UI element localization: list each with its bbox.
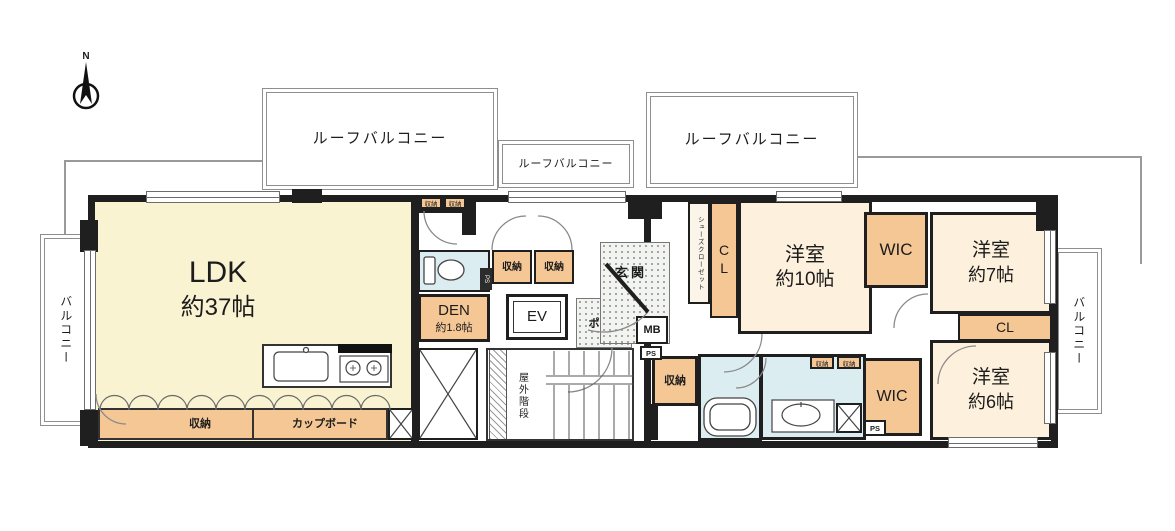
window bbox=[146, 191, 280, 203]
bedroom7-name: 洋室 bbox=[972, 239, 1010, 264]
window bbox=[1044, 230, 1056, 304]
hall-storage-label: 収納 bbox=[664, 374, 686, 388]
stairs-hatch bbox=[489, 350, 507, 439]
wall-segment bbox=[80, 410, 98, 446]
ps-entrance-label: PS bbox=[646, 349, 656, 358]
ps-wash: PS bbox=[864, 420, 886, 436]
outdoor-stairs-label: 屋外階段 bbox=[510, 354, 534, 438]
window bbox=[508, 191, 626, 203]
wall-segment bbox=[292, 189, 322, 203]
window bbox=[84, 250, 96, 410]
parapet-line bbox=[64, 160, 264, 162]
top-storage-b: 収納 bbox=[444, 197, 466, 209]
roof-balcony-left-label: ルーフバルコニー bbox=[313, 129, 448, 149]
ldk-name: LDK bbox=[189, 253, 247, 292]
corridor-storage-a: 収納 bbox=[492, 250, 532, 284]
floor-plan: N ルーフバルコニー ルーフバルコニー ルーフバルコニー バルコニー バルコニー… bbox=[0, 0, 1175, 531]
outdoor-stairs bbox=[486, 348, 634, 441]
roof-balcony-left: ルーフバルコニー bbox=[262, 88, 498, 190]
room-ldk: LDK 約37帖 bbox=[128, 248, 308, 328]
stove-hood bbox=[338, 344, 392, 353]
ps-entrance: PS bbox=[640, 346, 662, 360]
wic-bedroom10: WIC bbox=[864, 212, 928, 288]
elevator-label: EV bbox=[527, 307, 547, 327]
ps-wash-label: PS bbox=[870, 424, 880, 433]
roof-balcony-center: ルーフバルコニー bbox=[498, 140, 634, 188]
ldk-storage-strip: 収納 カップボード bbox=[98, 408, 388, 440]
room-bedroom6: 洋室 約6帖 bbox=[930, 340, 1052, 440]
balcony-right-label: バルコニー bbox=[1070, 296, 1086, 366]
ps-toilet: PS bbox=[480, 268, 492, 290]
corridor-storage-b: 収納 bbox=[534, 250, 574, 284]
wash-storage-b-label: 収納 bbox=[843, 358, 856, 368]
shaft-box bbox=[388, 408, 414, 440]
room-den: DEN 約1.8帖 bbox=[418, 294, 490, 342]
balcony-right: バルコニー bbox=[1054, 248, 1102, 414]
compass-icon bbox=[64, 60, 108, 118]
parapet-line bbox=[1140, 156, 1142, 264]
entrance-label: 玄関 bbox=[615, 265, 647, 282]
corridor-storage-b-label: 収納 bbox=[544, 261, 564, 274]
wic-bedroom10-label: WIC bbox=[879, 239, 912, 261]
bedroom7-size: 約7帖 bbox=[968, 264, 1014, 287]
shoes-closet: シューズクローゼット bbox=[688, 202, 710, 304]
corridor-storage-a-label: 収納 bbox=[502, 261, 522, 274]
parapet-line bbox=[856, 156, 1142, 158]
shaft-box-wash bbox=[836, 403, 862, 433]
closet-bedroom10: CL bbox=[710, 202, 738, 318]
top-storage-a-label: 収納 bbox=[425, 198, 438, 208]
ldk-size: 約37帖 bbox=[181, 292, 256, 323]
bedroom6-size: 約6帖 bbox=[968, 391, 1014, 414]
compass: N bbox=[64, 50, 108, 120]
window bbox=[1044, 352, 1056, 424]
balcony-left: バルコニー bbox=[40, 234, 90, 426]
wall-segment bbox=[628, 195, 662, 219]
window bbox=[948, 437, 1038, 448]
wall-segment bbox=[646, 404, 658, 440]
roof-balcony-right: ルーフバルコニー bbox=[646, 92, 858, 188]
meter-box-label: MB bbox=[643, 324, 660, 336]
shaft-box-large bbox=[418, 348, 478, 440]
wic-bedroom6-label: WIC bbox=[876, 387, 907, 408]
cupboard-label: カップボード bbox=[260, 417, 390, 431]
roof-balcony-right-label: ルーフバルコニー bbox=[685, 130, 820, 150]
top-storage-b-label: 収納 bbox=[449, 198, 462, 208]
bedroom10-name: 洋室 bbox=[785, 242, 825, 268]
ps-toilet-label: PS bbox=[483, 275, 489, 283]
closet-bedroom6: CL bbox=[958, 314, 1052, 341]
closet-bedroom6-label: CL bbox=[996, 318, 1014, 336]
den-name: DEN bbox=[438, 301, 470, 321]
top-storage-a: 収納 bbox=[420, 197, 442, 209]
ldk-storage-label: 収納 bbox=[140, 417, 260, 431]
room-bedroom7: 洋室 約7帖 bbox=[930, 212, 1052, 314]
wash-storage-b: 収納 bbox=[837, 356, 861, 369]
window bbox=[776, 191, 842, 202]
bathroom bbox=[698, 354, 762, 441]
bedroom6-name: 洋室 bbox=[972, 366, 1010, 391]
closet-bedroom10-label: CL bbox=[715, 242, 733, 278]
shoes-closet-label: シューズクローゼット bbox=[695, 216, 703, 291]
bedroom10-size: 約10帖 bbox=[775, 268, 834, 293]
wash-storage-a-label: 収納 bbox=[816, 358, 829, 368]
wall-segment bbox=[1036, 195, 1058, 231]
elevator: EV bbox=[506, 294, 568, 340]
meter-box: MB bbox=[636, 316, 668, 344]
hall-storage: 収納 bbox=[652, 356, 698, 406]
wall-segment bbox=[80, 220, 98, 252]
roof-balcony-center-label: ルーフバルコニー bbox=[518, 157, 613, 171]
compass-north-label: N bbox=[64, 50, 108, 63]
balcony-left-label: バルコニー bbox=[57, 295, 73, 365]
room-bedroom10: 洋室 約10帖 bbox=[738, 200, 872, 334]
den-size: 約1.8帖 bbox=[435, 321, 472, 335]
parapet-line bbox=[64, 160, 66, 236]
wash-storage-a: 収納 bbox=[810, 356, 834, 369]
